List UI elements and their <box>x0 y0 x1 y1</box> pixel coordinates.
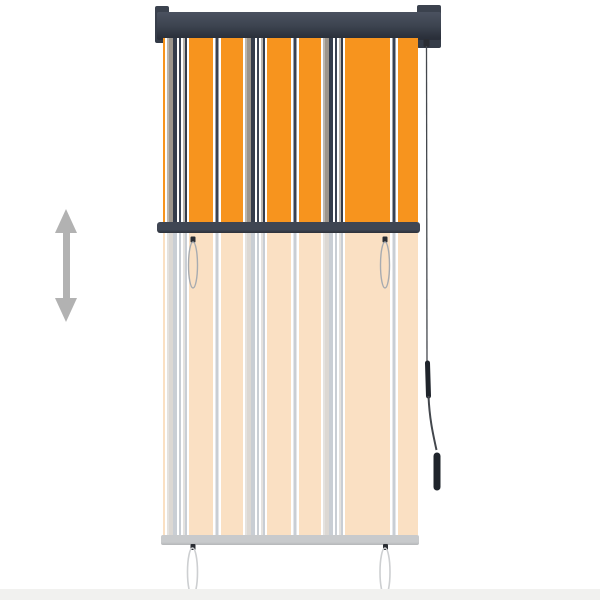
floor-shadow <box>0 589 600 600</box>
fabric-loop-upper-right <box>381 237 390 289</box>
cord-and-loops-overlay <box>0 0 600 600</box>
cord-connector <box>428 363 429 396</box>
product-photo-canvas <box>0 0 600 600</box>
fabric-loop-upper-left <box>189 237 198 289</box>
pull-cord <box>424 39 438 487</box>
cord-attachment <box>424 39 430 47</box>
